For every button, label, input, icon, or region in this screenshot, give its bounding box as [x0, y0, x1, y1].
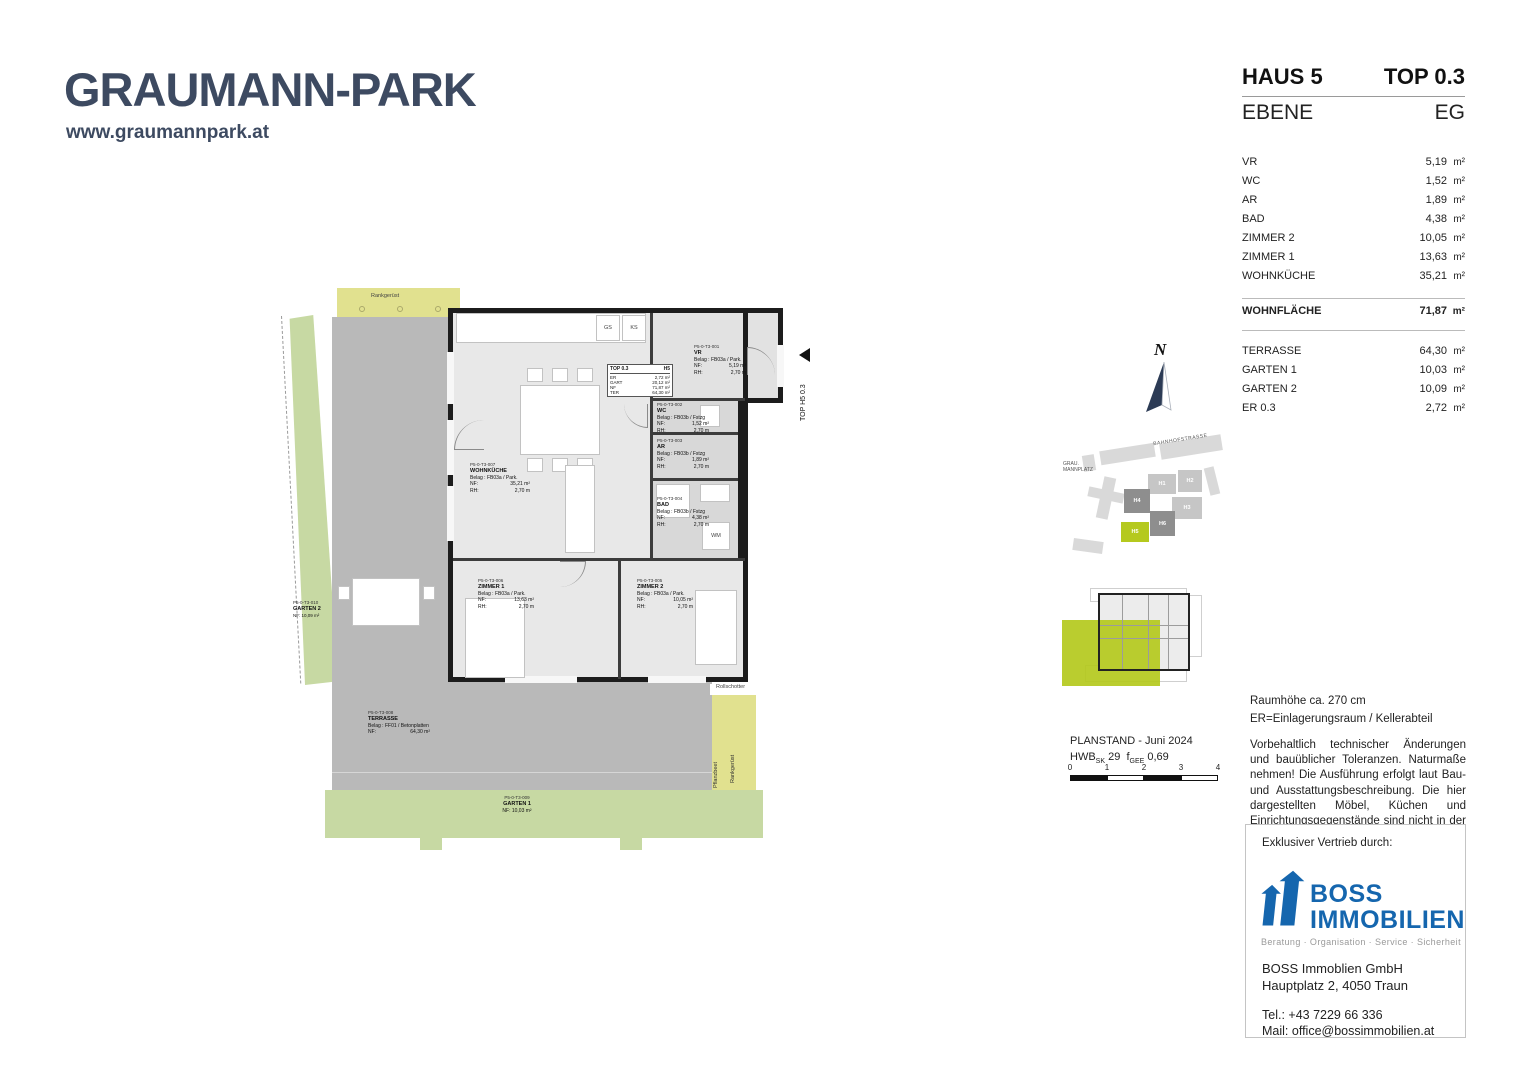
scale-segment	[1144, 775, 1181, 781]
planter	[620, 836, 642, 850]
trellis-label: Rankgerüst	[730, 703, 736, 783]
shaft	[738, 401, 745, 558]
wall	[650, 313, 653, 558]
divider	[1242, 298, 1465, 299]
chair	[527, 368, 543, 382]
entry-door-opening	[777, 345, 784, 387]
unit-info-box: TOP 0.3H5 ER2,72 m² GART20,12 m² NF71,87…	[607, 364, 673, 397]
wall	[650, 398, 745, 401]
north-label: N	[1154, 340, 1184, 360]
haus-label: HAUS 5	[1242, 64, 1323, 90]
table-row: ZIMMER 210,05m²	[1242, 232, 1465, 251]
planting-bed-label: Pflanzbeet	[713, 733, 719, 788]
vendor-contact: Tel.: +43 7229 66 336 Mail: office@bossi…	[1262, 1007, 1465, 1040]
outdoor-area-table: TERRASSE64,30m² GARTEN 110,03m² GARTEN 2…	[1242, 345, 1465, 421]
wall	[453, 558, 745, 561]
scale-bar: 0 1 2 3 4	[1070, 763, 1230, 785]
scale-segment	[1107, 775, 1144, 781]
room-height-note: Raumhöhe ca. 270 cm	[1250, 695, 1466, 707]
entry-arrow-icon	[799, 348, 810, 362]
site-building-h2: H2	[1178, 470, 1202, 492]
wall	[650, 478, 745, 481]
trellis-post	[397, 306, 403, 312]
bed-zimmer2	[695, 590, 737, 665]
scale-segment	[1181, 775, 1218, 781]
window	[648, 676, 706, 683]
window	[447, 352, 454, 404]
room-label-zimmer2: P5-0-T3-005 ZIMMER 2 Belag : FB03a / Par…	[637, 578, 693, 610]
brand-word-2: IMMOBILIEN	[1310, 908, 1465, 934]
room-label-vr: P5-0-T3-001 VR Belag : FB03a / Park. NF:…	[694, 344, 746, 376]
entry-label: TOP H5 0.3	[800, 366, 807, 421]
table-row: VR5,19m²	[1242, 156, 1465, 175]
chair	[577, 368, 593, 382]
room-label-zimmer1: P5-0-T3-006 ZIMMER 1 Belag : FB03a / Par…	[478, 578, 534, 610]
site-building-h5-highlight: H5	[1121, 522, 1149, 542]
room-label-wc: P5-0-T3-002 WC Belag : FB03b / Fstzg NF:…	[657, 402, 709, 434]
site-plan: BAHNHOFSTRASSE GRAU. MANNPLATZ H1 H2 H3 …	[1045, 435, 1240, 565]
room-label-terrasse: P5-0-T3-008 TERRASSE Belag : FF01 / Beto…	[368, 710, 430, 736]
top-label: TOP 0.3	[1384, 64, 1465, 90]
room-label-bad: P5-0-T3-004 BAD Belag : FB03b / Fstzg NF…	[657, 496, 709, 528]
site-building-h4: H4	[1124, 489, 1150, 513]
vendor-company-address: BOSS Immoblien GmbH Hauptplatz 2, 4050 T…	[1262, 961, 1465, 995]
boss-logo-icon	[1256, 865, 1309, 933]
total-row: WOHNFLÄCHE 71,87 m²	[1242, 305, 1465, 324]
site-building	[1072, 538, 1103, 554]
room-area-table: VR5,19m² WC1,52m² AR1,89m² BAD4,38m² ZIM…	[1242, 156, 1465, 289]
planstand-label: PLANSTAND - Juni 2024	[1070, 735, 1193, 747]
planter	[420, 836, 442, 850]
table-row: WC1,52m²	[1242, 175, 1465, 194]
trellis-strip-top: Rankgerüst	[337, 288, 460, 317]
scale-segment	[1070, 775, 1107, 781]
table-row: WOHNKÜCHE35,21m²	[1242, 270, 1465, 289]
room-label-garten1: P5-0-T3-009 GARTEN 1 NF: 10,03 m²	[488, 795, 546, 814]
terrace-chair	[423, 586, 435, 600]
compass-needle-icon	[1140, 360, 1184, 420]
notes-block: Raumhöhe ca. 270 cm ER=Einlagerungsraum …	[1250, 695, 1466, 844]
level-label: EBENE	[1242, 101, 1313, 125]
er-note: ER=Einlagerungsraum / Kellerabteil	[1250, 713, 1466, 725]
terrace-door-opening	[447, 420, 454, 475]
logo-website: www.graumannpark.at	[66, 122, 269, 144]
room-label-wohnkueche: P5-0-T3-007 WOHNKÜCHE Belag : FB03a / Pa…	[470, 462, 530, 494]
site-building-h6: H6	[1150, 511, 1175, 536]
vendor-tagline: Beratung · Organisation · Service · Sich…	[1261, 937, 1465, 947]
terrace-step-line	[332, 772, 712, 773]
terrace-table	[352, 578, 420, 626]
dishwasher: GS	[596, 315, 620, 341]
trellis-post	[359, 306, 365, 312]
site-building-h1: H1	[1148, 474, 1176, 494]
level-value: EG	[1435, 101, 1465, 125]
table-row: BAD4,38m²	[1242, 213, 1465, 232]
north-arrow: N	[1140, 340, 1184, 420]
gravel-label: Rollschotter	[716, 684, 772, 690]
divider	[1242, 330, 1465, 331]
gravel-strip-bottom: Rollschotter	[710, 684, 772, 695]
table-row: TERRASSE64,30m²	[1242, 345, 1465, 364]
keyplan-building-outline	[1098, 593, 1190, 671]
room-label-ar: P5-0-T3-003 AR Belag : FB03b / Fstzg NF:…	[657, 438, 709, 470]
divider	[1242, 96, 1465, 97]
unit-panel: HAUS 5 TOP 0.3 EBENE EG VR5,19m² WC1,52m…	[1242, 64, 1465, 421]
key-plan	[1060, 583, 1220, 691]
table-row: GARTEN 110,03m²	[1242, 364, 1465, 383]
table-row: GARTEN 210,09m²	[1242, 383, 1465, 402]
dining-table	[520, 385, 600, 455]
window	[447, 486, 454, 541]
site-building-h3: H3	[1172, 497, 1202, 519]
floorplan-terrace-bottom	[450, 680, 712, 790]
vendor-logo: BOSS IMMOBILIEN	[1260, 865, 1465, 933]
vendor-heading: Exklusiver Vertrieb durch:	[1262, 837, 1465, 849]
table-row: ZIMMER 113,63m²	[1242, 251, 1465, 270]
chair	[552, 368, 568, 382]
vendor-box: Exklusiver Vertrieb durch: BOSS IMMOBILI…	[1245, 824, 1466, 1038]
table-row: AR1,89m²	[1242, 194, 1465, 213]
terrace-chair	[338, 586, 350, 600]
page-title: GRAUMANN-PARK	[64, 62, 476, 117]
brand-word-1: BOSS	[1310, 882, 1465, 908]
site-building	[1099, 443, 1156, 465]
fridge: KS	[622, 315, 646, 341]
sideboard	[565, 465, 595, 553]
place-label: GRAU. MANNPLATZ	[1063, 461, 1093, 473]
room-label-garten2: P5-0-T3-010 GARTEN 2 NF: 10,09 m²	[293, 600, 339, 619]
site-building	[1204, 466, 1220, 496]
wall	[618, 561, 621, 679]
trellis-post	[435, 306, 441, 312]
table-row: ER 0.32,72m²	[1242, 402, 1465, 421]
trellis-strip-right: Rankgerüst Pflanzbeet	[712, 695, 756, 790]
trellis-label: Rankgerüst	[371, 293, 399, 299]
